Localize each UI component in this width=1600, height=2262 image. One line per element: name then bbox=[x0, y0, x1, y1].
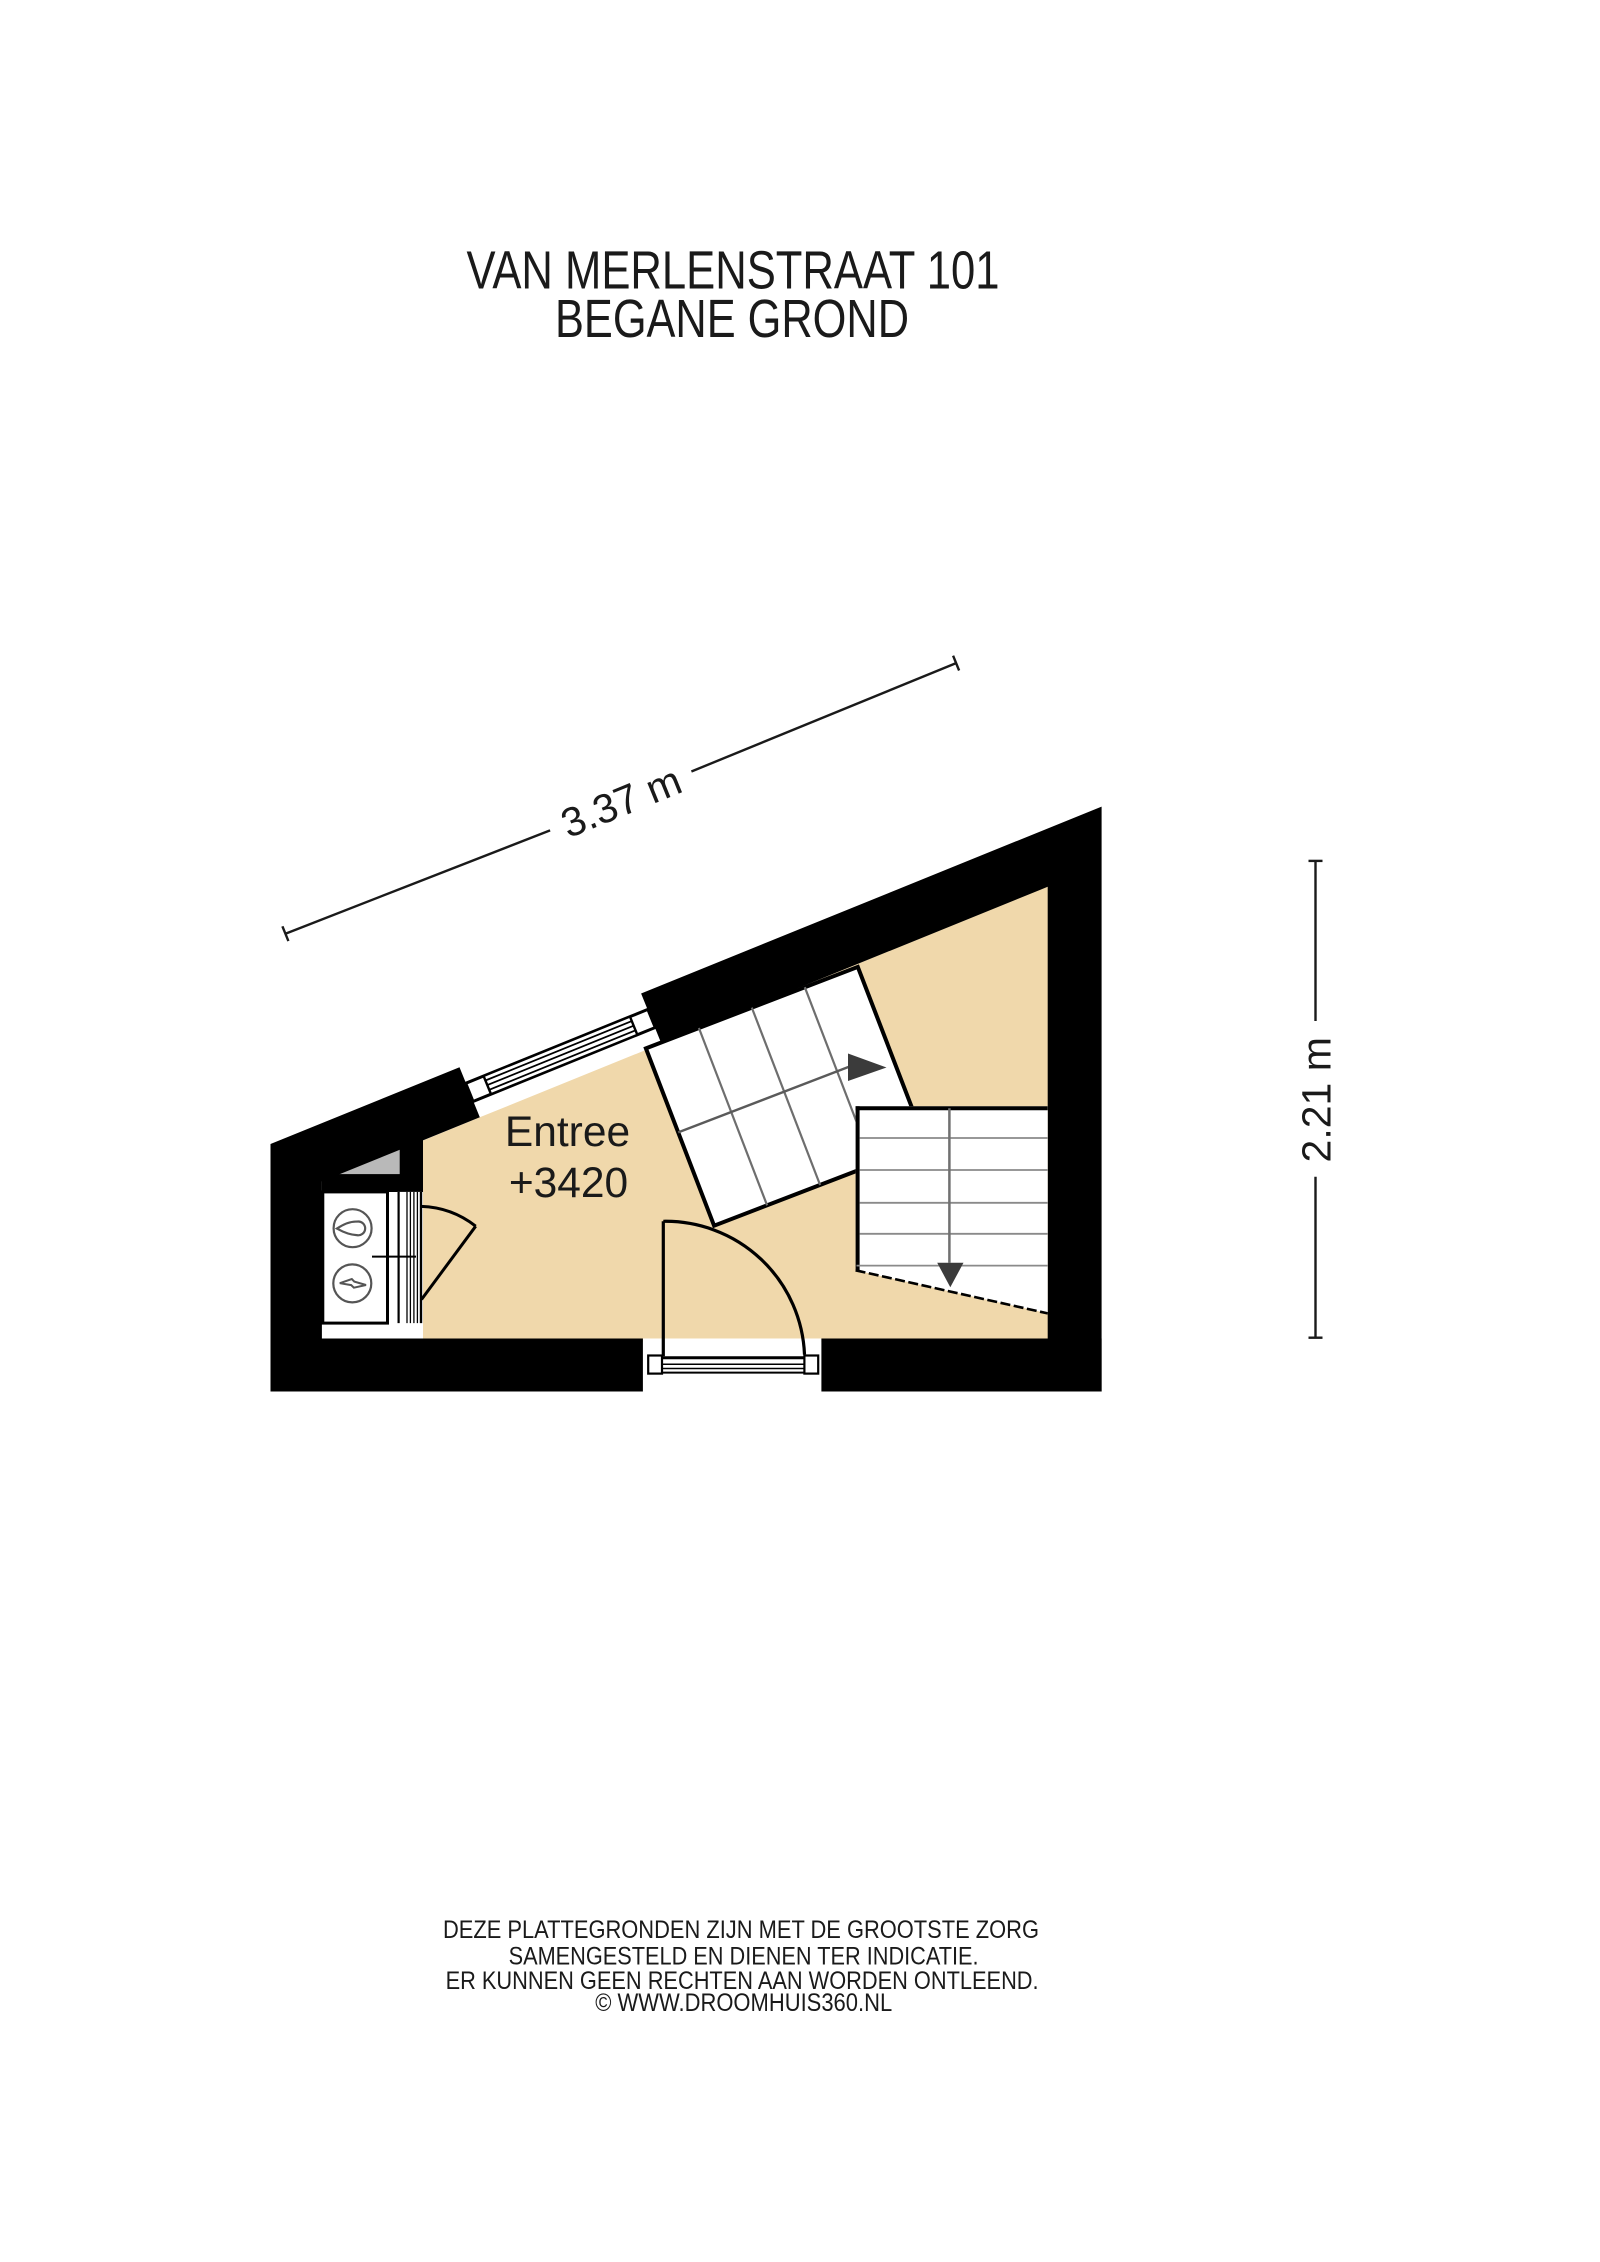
svg-text:© WWW.DROOMHUIS360.NL: © WWW.DROOMHUIS360.NL bbox=[595, 1989, 892, 2017]
svg-text:2.21 m: 2.21 m bbox=[1294, 1037, 1340, 1162]
svg-text:DEZE PLATTEGRONDEN ZIJN MET DE: DEZE PLATTEGRONDEN ZIJN MET DE GROOTSTE … bbox=[443, 1916, 1039, 1944]
svg-text:BEGANE GROND: BEGANE GROND bbox=[555, 290, 909, 349]
svg-text:Entree: Entree bbox=[505, 1109, 630, 1156]
svg-text:+3420: +3420 bbox=[509, 1160, 628, 1207]
